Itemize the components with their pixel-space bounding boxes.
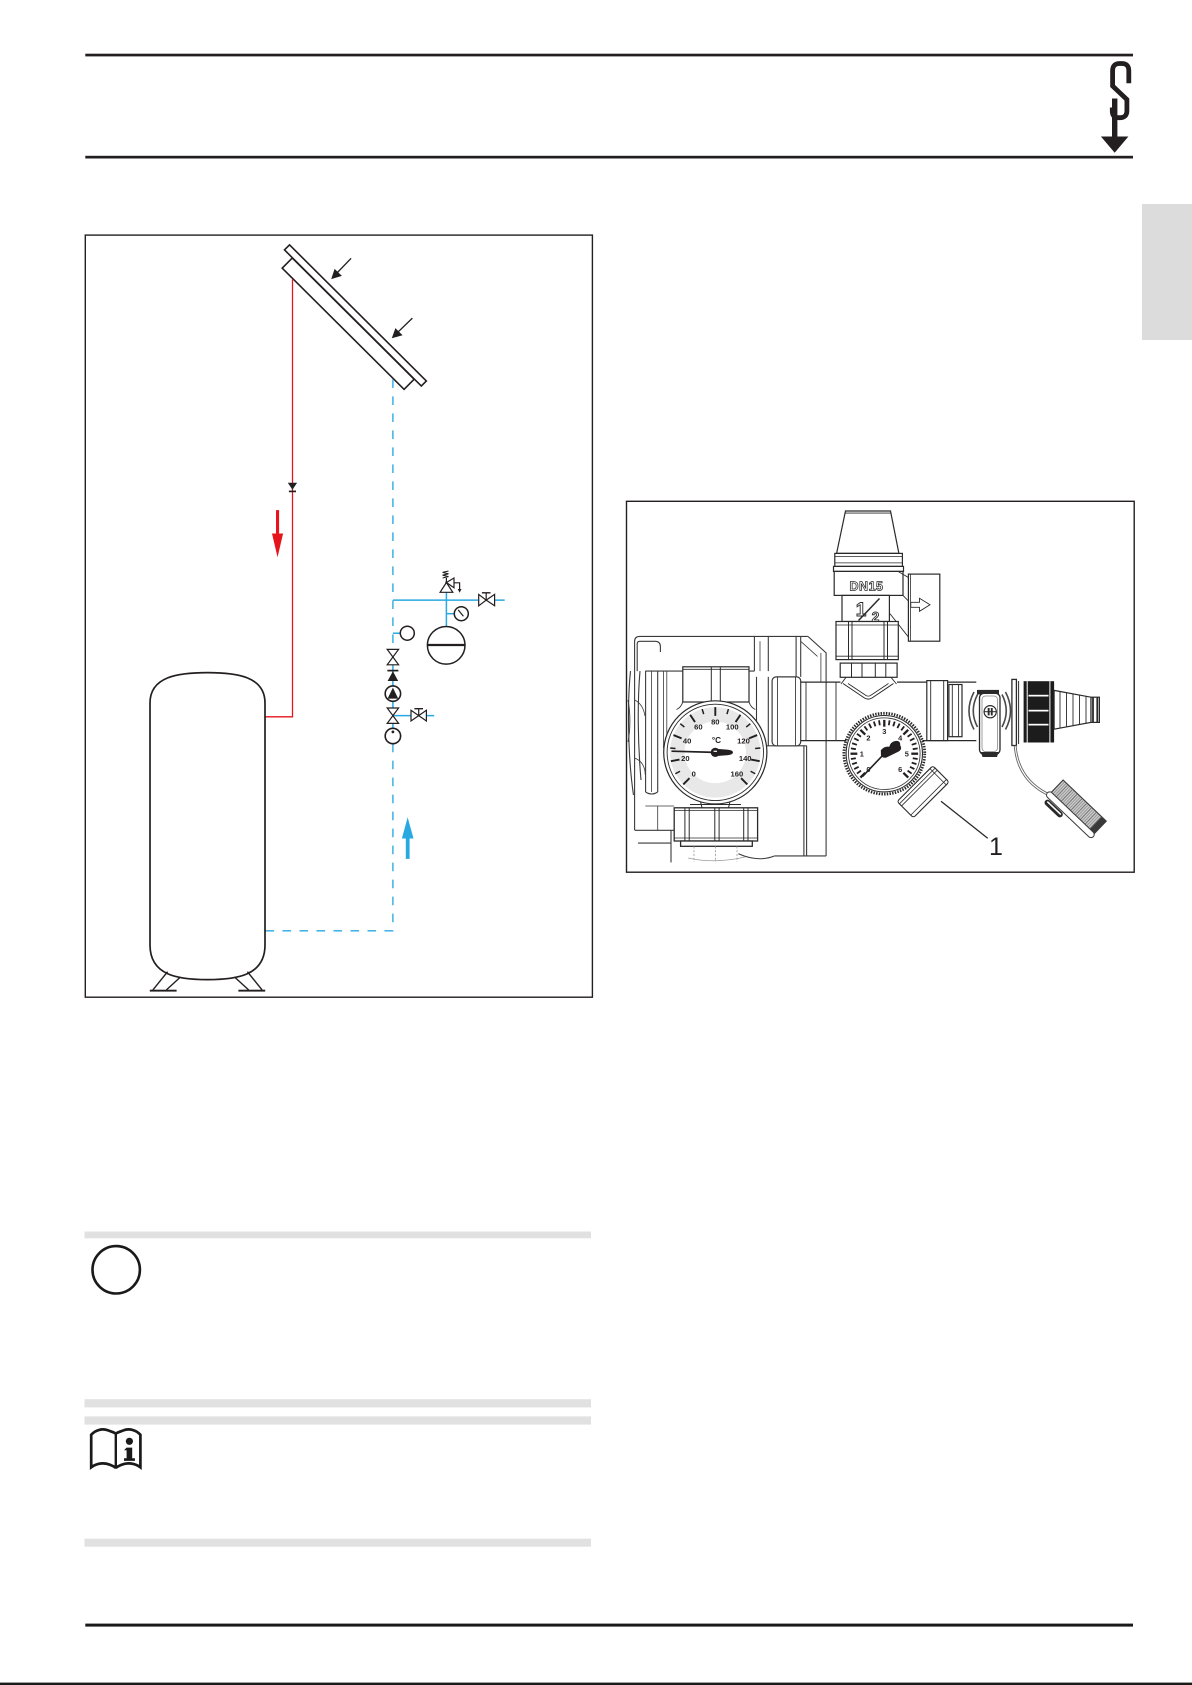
svg-text:1: 1 xyxy=(860,749,864,758)
svg-text:6: 6 xyxy=(898,765,902,774)
svg-text:3: 3 xyxy=(882,727,886,736)
svg-text:60: 60 xyxy=(694,723,702,732)
svg-text:100: 100 xyxy=(726,723,739,732)
svg-text:80: 80 xyxy=(711,718,719,727)
svg-text:1: 1 xyxy=(989,833,1003,861)
svg-text:2: 2 xyxy=(866,733,870,742)
svg-text:5: 5 xyxy=(905,749,909,758)
svg-text:DN15: DN15 xyxy=(850,580,884,594)
svg-text:40: 40 xyxy=(683,736,691,745)
svg-text:120: 120 xyxy=(737,736,750,745)
svg-text:0: 0 xyxy=(692,770,696,779)
svg-text:160: 160 xyxy=(731,770,744,779)
svg-text:140: 140 xyxy=(739,754,752,763)
svg-text:°C: °C xyxy=(712,736,721,745)
svg-text:2: 2 xyxy=(872,610,880,625)
svg-text:20: 20 xyxy=(681,754,689,763)
